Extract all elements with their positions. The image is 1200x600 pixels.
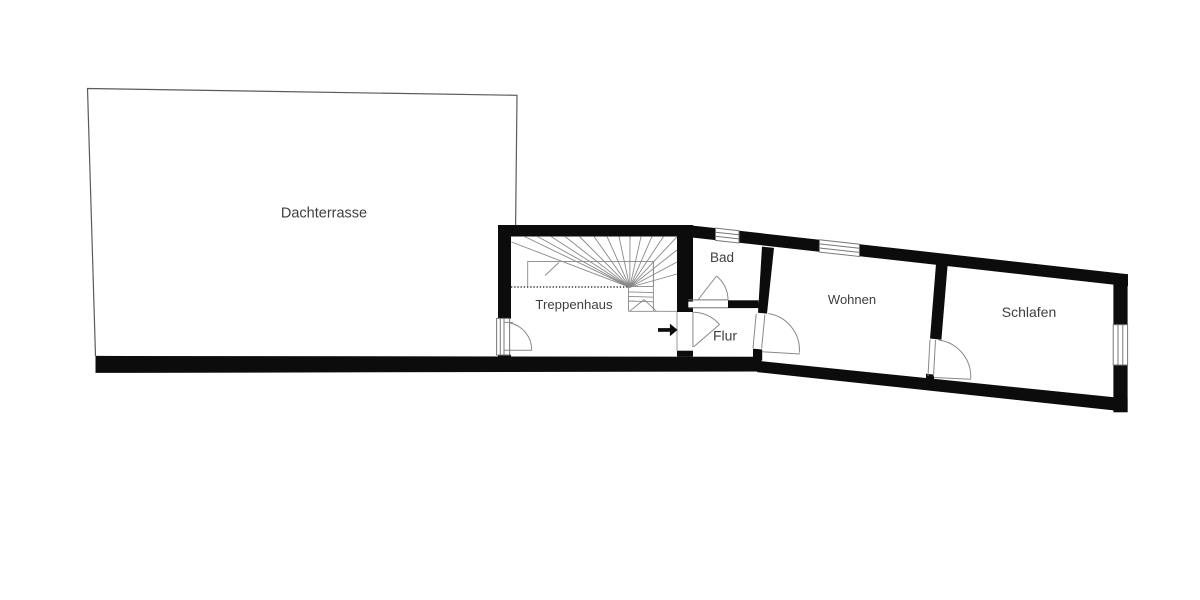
- svg-text:Bad: Bad: [710, 250, 734, 265]
- svg-text:Schlafen: Schlafen: [1002, 304, 1056, 320]
- svg-text:Wohnen: Wohnen: [828, 292, 876, 307]
- svg-text:Dachterrasse: Dachterrasse: [281, 205, 367, 221]
- svg-text:Flur: Flur: [713, 328, 737, 344]
- svg-text:Treppenhaus: Treppenhaus: [535, 297, 613, 312]
